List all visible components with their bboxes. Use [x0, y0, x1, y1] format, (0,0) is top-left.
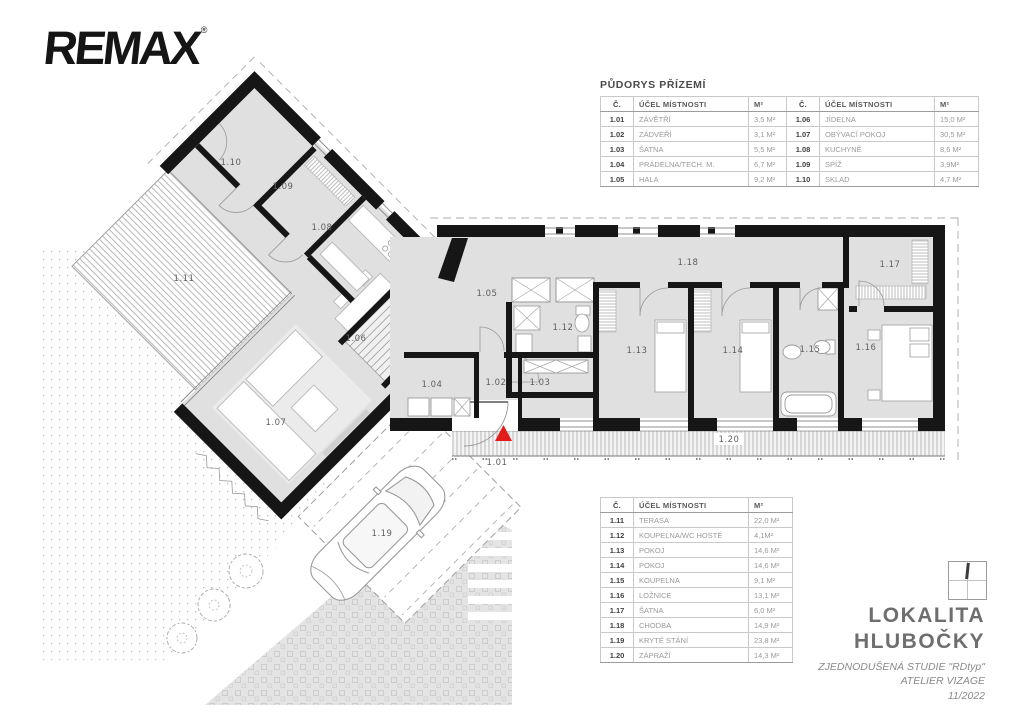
room-label-109: 1.09 [273, 182, 294, 192]
room-area: 8,6 M² [935, 142, 979, 157]
room-table-2: Č. ÚČEL MÍSTNOSTI M² 1.06JÍDELNA15,0 M² … [786, 96, 979, 187]
room-label-117: 1.17 [880, 260, 901, 270]
room-purpose: ZÁDVEŘÍ [634, 127, 749, 142]
room-area: 13,1 M² [749, 588, 793, 603]
room-number: 1.01 [601, 112, 634, 127]
room-area: 14,9 M² [749, 618, 793, 633]
room-label-107: 1.07 [266, 418, 287, 428]
room-label-110: 1.10 [221, 158, 242, 168]
col-header-purpose: ÚČEL MÍSTNOSTI [634, 498, 749, 513]
registered-trademark: ® [201, 25, 208, 35]
room-label-105: 1.05 [477, 289, 498, 299]
room-area: 15,0 M² [935, 112, 979, 127]
room-number: 1.12 [601, 528, 634, 543]
col-header-number: Č. [601, 498, 634, 513]
table-header-row: Č. ÚČEL MÍSTNOSTI M² [787, 97, 979, 112]
study-title: ZJEDNODUŠENÁ STUDIE "RDtyp" [818, 660, 985, 675]
room-purpose: ZÁPRAŽÍ [634, 648, 749, 663]
room-purpose: KOUPELNA [634, 573, 749, 588]
room-label-102: 1.02 [486, 378, 507, 388]
room-number: 1.09 [787, 157, 820, 172]
room-number: 1.05 [601, 172, 634, 187]
room-purpose: KOUPELNA/WC HOSTÉ [634, 528, 749, 543]
room-row: 1.07OBÝVACÍ POKOJ30,5 M² [787, 127, 979, 142]
col-header-purpose: ÚČEL MÍSTNOSTI [820, 97, 935, 112]
room-area: 4,1M² [749, 528, 793, 543]
room-row: 1.19KRYTÉ STÁNÍ23,8 M² [601, 633, 793, 648]
room-area: 14,6 M² [749, 558, 793, 573]
room-number: 1.19 [601, 633, 634, 648]
room-row: 1.09SPÍŽ3,9M² [787, 157, 979, 172]
room-row: 1.11TERASA22,0 M² [601, 513, 793, 528]
room-area: 9,1 M² [749, 573, 793, 588]
room-table-3: Č. ÚČEL MÍSTNOSTI M² 1.11TERASA22,0 M² 1… [600, 497, 793, 663]
room-row: 1.04PRÁDELNA/TECH. M.6,7 M² [601, 157, 793, 172]
room-area: 23,8 M² [749, 633, 793, 648]
room-label-106: 1.06 [346, 334, 367, 344]
room-purpose: KRYTÉ STÁNÍ [634, 633, 749, 648]
remax-wordmark: REMAX [42, 24, 202, 71]
room-purpose: ŠATNA [634, 603, 749, 618]
room-label-114: 1.14 [723, 346, 744, 356]
room-purpose: KUCHYNĚ [820, 142, 935, 157]
col-header-area: M² [935, 97, 979, 112]
room-label-103: 1.03 [530, 378, 551, 388]
floorplan-sheet: 1.01 1.02 1.03 1.04 1.05 1.06 1.07 1.08 … [0, 0, 1024, 723]
room-number: 1.10 [787, 172, 820, 187]
table-header-row: Č. ÚČEL MÍSTNOSTI M² [601, 97, 793, 112]
room-row: 1.03ŠATNA5,5 M² [601, 142, 793, 157]
table-header-row: Č. ÚČEL MÍSTNOSTI M² [601, 498, 793, 513]
room-purpose: OBÝVACÍ POKOJ [820, 127, 935, 142]
room-purpose: LOŽNICE [634, 588, 749, 603]
room-label-104: 1.04 [422, 380, 443, 390]
col-header-purpose: ÚČEL MÍSTNOSTI [634, 97, 749, 112]
room-label-120: 1.20 [719, 435, 740, 445]
room-row: 1.17ŠATNA6,0 M² [601, 603, 793, 618]
room-row: 1.10SKLAD4,7 M² [787, 172, 979, 187]
room-purpose: ZÁVĚTŘÍ [634, 112, 749, 127]
room-number: 1.18 [601, 618, 634, 633]
location-line-2: HLUBOČKY [818, 629, 985, 655]
room-number: 1.16 [601, 588, 634, 603]
room-label-101: 1.01 [487, 458, 508, 468]
footer-block: LOKALITA HLUBOČKY ZJEDNODUŠENÁ STUDIE "R… [818, 603, 985, 704]
room-row: 1.05HALA9,2 M² [601, 172, 793, 187]
room-area: 14,6 M² [749, 543, 793, 558]
room-label-112: 1.12 [553, 323, 574, 333]
atelier-logo-icon [948, 561, 987, 600]
room-label-108: 1.08 [312, 223, 333, 233]
room-row: 1.01ZÁVĚTŘÍ3,5 M² [601, 112, 793, 127]
room-number: 1.03 [601, 142, 634, 157]
col-header-number: Č. [787, 97, 820, 112]
room-row: 1.14POKOJ14,6 M² [601, 558, 793, 573]
room-number: 1.04 [601, 157, 634, 172]
room-row: 1.16LOŽNICE13,1 M² [601, 588, 793, 603]
study-date: 11/2022 [818, 689, 985, 704]
room-purpose: ŠATNA [634, 142, 749, 157]
room-label-116: 1.16 [856, 343, 877, 353]
room-label-118: 1.18 [678, 258, 699, 268]
room-number: 1.02 [601, 127, 634, 142]
location-line-1: LOKALITA [818, 603, 985, 629]
room-row: 1.12KOUPELNA/WC HOSTÉ4,1M² [601, 528, 793, 543]
room-purpose: SKLAD [820, 172, 935, 187]
room-number: 1.15 [601, 573, 634, 588]
room-row: 1.15KOUPELNA9,1 M² [601, 573, 793, 588]
room-label-111: 1.11 [174, 274, 195, 284]
room-purpose: TERASA [634, 513, 749, 528]
room-row: 1.08KUCHYNĚ8,6 M² [787, 142, 979, 157]
room-number: 1.07 [787, 127, 820, 142]
plan-title: PŮDORYS PŘÍZEMÍ [600, 79, 706, 91]
room-row: 1.02ZÁDVEŘÍ3,1 M² [601, 127, 793, 142]
room-row: 1.13POKOJ14,6 M² [601, 543, 793, 558]
room-number: 1.17 [601, 603, 634, 618]
room-row: 1.18CHODBA14,9 M² [601, 618, 793, 633]
col-header-area: M² [749, 498, 793, 513]
room-table-1: Č. ÚČEL MÍSTNOSTI M² 1.01ZÁVĚTŘÍ3,5 M² 1… [600, 96, 793, 187]
room-purpose: HALA [634, 172, 749, 187]
room-area: 22,0 M² [749, 513, 793, 528]
room-label-113: 1.13 [627, 346, 648, 356]
room-purpose: CHODBA [634, 618, 749, 633]
room-number: 1.06 [787, 112, 820, 127]
room-area: 14,3 M² [749, 648, 793, 663]
room-row: 1.06JÍDELNA15,0 M² [787, 112, 979, 127]
room-purpose: JÍDELNA [820, 112, 935, 127]
room-purpose: SPÍŽ [820, 157, 935, 172]
room-area: 4,7 M² [935, 172, 979, 187]
room-number: 1.13 [601, 543, 634, 558]
room-label-119: 1.19 [372, 529, 393, 539]
room-area: 30,5 M² [935, 127, 979, 142]
room-area: 3,9M² [935, 157, 979, 172]
atelier-name: ATELIER VIZAGE [818, 674, 985, 689]
room-number: 1.08 [787, 142, 820, 157]
remax-logo: REMAX® [44, 24, 205, 71]
room-area: 6,0 M² [749, 603, 793, 618]
room-number: 1.20 [601, 648, 634, 663]
room-row: 1.20ZÁPRAŽÍ14,3 M² [601, 648, 793, 663]
zaprazi-strip [452, 431, 945, 459]
room-number: 1.14 [601, 558, 634, 573]
room-purpose: PRÁDELNA/TECH. M. [634, 157, 749, 172]
room-purpose: POKOJ [634, 558, 749, 573]
room-purpose: POKOJ [634, 543, 749, 558]
room-number: 1.11 [601, 513, 634, 528]
room-label-115: 1.15 [800, 345, 821, 355]
col-header-number: Č. [601, 97, 634, 112]
